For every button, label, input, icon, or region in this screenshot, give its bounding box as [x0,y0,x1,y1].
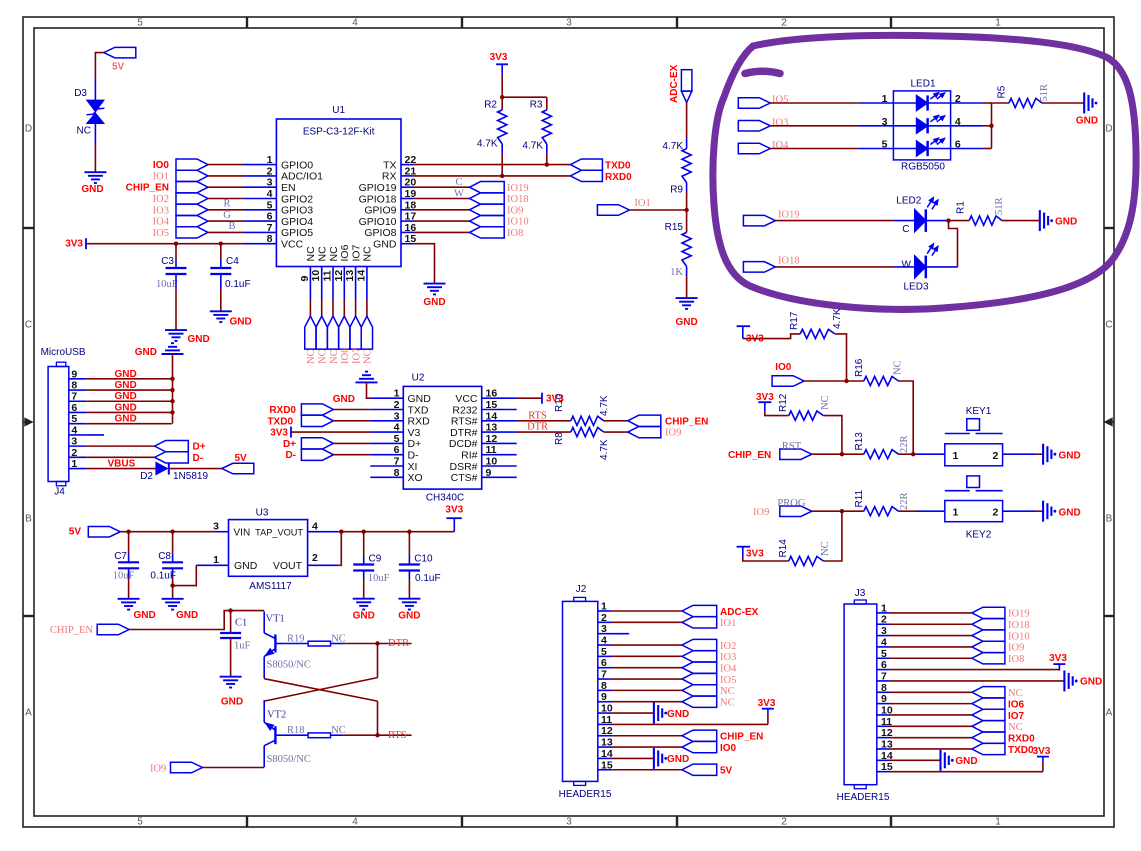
svg-text:C: C [455,177,462,188]
svg-text:IO10: IO10 [1008,631,1030,642]
svg-text:VOUT: VOUT [273,560,303,572]
svg-text:GND: GND [230,317,252,328]
svg-text:8: 8 [881,682,887,694]
svg-text:RGB5050: RGB5050 [901,162,945,173]
svg-text:2: 2 [312,552,318,564]
svg-text:14: 14 [355,270,367,282]
svg-text:VT1: VT1 [266,614,285,625]
svg-text:9: 9 [486,467,492,479]
svg-text:3: 3 [566,18,572,29]
svg-text:2: 2 [781,817,787,828]
svg-text:GND: GND [333,394,355,405]
svg-text:TX: TX [383,159,396,171]
svg-text:6: 6 [881,659,887,671]
svg-text:0.1uF: 0.1uF [225,279,251,290]
svg-text:3V3: 3V3 [65,239,83,250]
svg-text:KEY1: KEY1 [966,406,992,417]
svg-text:R11: R11 [854,489,865,507]
svg-text:1: 1 [213,554,219,566]
svg-text:D-: D- [408,450,420,462]
svg-text:IO7: IO7 [351,348,362,364]
svg-text:GND: GND [373,239,397,251]
svg-text:C: C [902,224,909,235]
svg-text:HEADER15: HEADER15 [559,789,612,800]
svg-text:IO7: IO7 [350,244,362,261]
svg-text:IO3: IO3 [720,652,736,663]
svg-text:GPIO9: GPIO9 [364,205,396,217]
svg-text:D2: D2 [140,471,153,482]
svg-text:IO1: IO1 [720,618,736,629]
svg-text:NC: NC [306,349,317,364]
svg-text:GND: GND [134,610,156,621]
svg-text:C10: C10 [414,554,433,565]
svg-text:CH340C: CH340C [426,493,464,504]
svg-text:4: 4 [312,521,318,533]
svg-text:U1: U1 [332,105,345,116]
svg-text:B: B [1106,514,1113,525]
svg-text:RST: RST [782,441,802,452]
svg-text:J3: J3 [855,588,866,599]
svg-text:7: 7 [394,456,400,468]
svg-text:W: W [454,188,464,199]
svg-text:LED3: LED3 [903,282,928,293]
svg-text:CHIP_EN: CHIP_EN [728,450,771,461]
svg-text:DTR: DTR [388,638,409,649]
svg-text:R232: R232 [452,404,477,416]
svg-text:TXD: TXD [408,404,429,416]
svg-text:IO10: IO10 [507,217,529,228]
svg-text:4.7K: 4.7K [832,308,843,329]
svg-text:4: 4 [352,18,358,29]
svg-text:GPIO2: GPIO2 [281,193,313,205]
svg-text:IO18: IO18 [507,194,529,205]
svg-text:51R: 51R [1039,84,1050,102]
svg-text:3: 3 [566,817,572,828]
svg-text:3: 3 [882,116,888,128]
svg-text:TXD0: TXD0 [267,416,293,427]
svg-text:15: 15 [486,399,498,411]
svg-text:GPIO10: GPIO10 [359,216,397,228]
svg-text:4.7K: 4.7K [522,141,543,152]
svg-text:8: 8 [394,467,400,479]
svg-text:C8: C8 [158,551,171,562]
svg-text:3: 3 [267,177,273,189]
svg-text:1: 1 [953,450,959,462]
svg-text:3V3: 3V3 [445,505,463,516]
svg-text:IO4: IO4 [153,217,170,228]
svg-text:GND: GND [115,391,137,402]
svg-text:1N5819: 1N5819 [173,471,208,482]
svg-text:3: 3 [213,521,219,533]
svg-text:EN: EN [281,182,296,194]
svg-text:RI#: RI# [461,450,478,462]
svg-text:10: 10 [486,456,498,468]
svg-text:NC: NC [720,686,735,697]
svg-text:CHIP_EN: CHIP_EN [720,732,763,743]
svg-text:IO19: IO19 [778,209,800,220]
svg-text:IO1: IO1 [634,198,650,209]
svg-text:11: 11 [322,270,334,281]
svg-text:4: 4 [352,817,358,828]
svg-text:J2: J2 [576,584,587,595]
svg-text:IO9: IO9 [1008,643,1024,654]
svg-text:4: 4 [881,636,887,648]
svg-text:IO7: IO7 [1008,711,1025,722]
svg-text:NC: NC [893,360,904,375]
svg-text:7: 7 [601,669,607,681]
svg-text:IO6: IO6 [339,244,351,261]
svg-text:D: D [25,124,32,135]
svg-text:2: 2 [601,612,607,624]
svg-text:3V3: 3V3 [1033,746,1051,757]
svg-text:D+: D+ [283,439,296,450]
svg-text:R: R [223,199,230,210]
svg-text:3: 3 [881,625,887,637]
svg-text:GND: GND [1059,451,1081,462]
svg-text:IO3: IO3 [772,117,788,128]
svg-text:ADC-EX: ADC-EX [669,64,680,103]
svg-text:IO19: IO19 [507,183,529,194]
svg-text:MicroUSB: MicroUSB [41,347,86,358]
svg-text:IO2: IO2 [720,641,736,652]
svg-text:22R: 22R [899,492,910,510]
svg-text:9: 9 [881,693,887,705]
svg-text:IO8: IO8 [1008,654,1024,665]
svg-text:GND: GND [408,393,432,405]
svg-text:10uF: 10uF [368,573,390,584]
svg-text:3V3: 3V3 [1049,653,1067,664]
svg-text:C1: C1 [235,618,247,629]
svg-text:NC: NC [720,698,735,709]
svg-text:GND: GND [423,297,445,308]
svg-text:DTR: DTR [527,422,548,433]
svg-text:9: 9 [299,276,311,282]
svg-text:RXD0: RXD0 [605,172,632,183]
svg-text:GPIO5: GPIO5 [281,227,313,239]
svg-text:NC: NC [329,349,340,364]
svg-text:D: D [1105,124,1112,135]
svg-text:GND: GND [115,402,137,413]
svg-text:VCC: VCC [455,393,478,405]
svg-text:GND: GND [1059,508,1081,519]
svg-text:KEY2: KEY2 [966,530,992,541]
svg-text:RX: RX [382,171,397,183]
svg-text:AMS1117: AMS1117 [249,581,292,592]
svg-text:IO0: IO0 [153,160,170,171]
svg-text:R5: R5 [997,85,1008,98]
svg-text:U3: U3 [256,508,269,519]
svg-text:R13: R13 [854,432,865,451]
svg-text:4: 4 [601,635,607,647]
svg-text:DSR#: DSR# [449,461,477,473]
svg-text:5: 5 [881,648,887,660]
svg-text:VT2: VT2 [267,710,286,721]
svg-text:U2: U2 [412,373,425,384]
svg-text:NC: NC [317,246,329,262]
svg-text:NC: NC [820,395,831,410]
svg-text:GND: GND [1080,677,1102,688]
svg-text:RTS: RTS [528,410,547,421]
svg-text:12: 12 [333,270,345,282]
svg-text:4.7K: 4.7K [477,139,498,150]
svg-text:51R: 51R [994,197,1005,215]
svg-text:3V3: 3V3 [270,428,288,439]
svg-text:NC: NC [1008,722,1023,733]
svg-text:5: 5 [267,199,273,211]
svg-text:GND: GND [115,369,137,380]
svg-text:3: 3 [394,410,400,422]
svg-text:5: 5 [137,18,143,29]
svg-text:IO8: IO8 [507,228,523,239]
svg-text:CHIP_EN: CHIP_EN [665,416,708,427]
svg-text:CHIP_EN: CHIP_EN [50,625,94,636]
svg-text:IO19: IO19 [1008,609,1030,620]
svg-text:NC: NC [305,246,317,262]
svg-text:D-: D- [193,453,204,464]
svg-text:4: 4 [394,422,400,434]
svg-text:HEADER15: HEADER15 [837,792,890,803]
svg-text:5V: 5V [69,527,82,538]
svg-text:GND: GND [115,380,137,391]
svg-text:J4: J4 [54,487,65,498]
svg-text:1: 1 [882,93,888,105]
svg-text:GND: GND [221,697,243,708]
svg-text:6: 6 [394,444,400,456]
svg-text:R18: R18 [287,725,305,736]
svg-text:5: 5 [601,646,607,658]
svg-text:ESP-C3-12F-Kit: ESP-C3-12F-Kit [303,127,375,138]
svg-text:R10: R10 [554,393,565,412]
svg-text:5V: 5V [112,62,125,73]
svg-text:GND: GND [1055,217,1077,228]
svg-text:4.7K: 4.7K [599,439,610,460]
svg-text:C7: C7 [114,551,127,562]
svg-text:PROG: PROG [777,498,805,509]
svg-text:GND: GND [234,560,258,572]
svg-text:RXD: RXD [408,416,431,428]
svg-text:11: 11 [601,714,612,726]
svg-text:0.1uF: 0.1uF [415,573,441,584]
svg-text:3V3: 3V3 [758,698,776,709]
svg-text:DCD#: DCD# [449,438,478,450]
svg-text:R3: R3 [530,100,543,111]
svg-text:GPIO0: GPIO0 [281,159,313,171]
svg-text:ADC/IO1: ADC/IO1 [281,171,323,183]
svg-text:R14: R14 [778,539,789,558]
svg-text:A: A [25,708,32,719]
svg-text:V3: V3 [408,427,421,439]
svg-text:GPIO19: GPIO19 [359,182,397,194]
svg-text:13: 13 [486,422,498,434]
svg-text:3: 3 [601,623,607,635]
svg-text:R15: R15 [665,222,684,233]
svg-text:1: 1 [995,817,1001,828]
svg-text:NC: NC [820,541,831,556]
svg-text:S8050/NC: S8050/NC [267,660,311,671]
svg-text:4: 4 [267,188,273,200]
svg-text:D3: D3 [74,88,87,99]
svg-text:IO9: IO9 [665,428,681,439]
svg-text:GND: GND [115,414,137,425]
svg-text:R16: R16 [854,358,865,377]
svg-text:W: W [902,260,912,271]
svg-text:3V3: 3V3 [746,549,764,560]
svg-text:IO9: IO9 [507,205,523,216]
svg-text:NC: NC [1008,688,1023,699]
svg-text:NC: NC [331,725,346,736]
svg-text:NC: NC [362,246,374,262]
svg-text:22R: 22R [899,435,910,453]
svg-text:XO: XO [408,472,423,484]
svg-text:IO5: IO5 [720,675,736,686]
svg-text:2: 2 [267,165,273,177]
svg-text:IO2: IO2 [153,194,169,205]
svg-text:4.7K: 4.7K [662,141,683,152]
svg-text:GND: GND [675,317,697,328]
svg-text:10: 10 [310,270,322,282]
svg-text:IO4: IO4 [720,664,737,675]
svg-text:XI: XI [408,461,418,473]
svg-text:CHIP_EN: CHIP_EN [126,183,169,194]
svg-text:G: G [223,210,231,221]
svg-text:2: 2 [881,614,887,626]
svg-text:IO3: IO3 [153,205,169,216]
svg-text:IO6: IO6 [340,348,351,364]
svg-text:2: 2 [993,450,999,462]
svg-text:1: 1 [267,154,273,166]
svg-text:ADC-EX: ADC-EX [720,607,759,618]
svg-text:NC: NC [77,126,91,137]
svg-text:2: 2 [781,18,787,29]
svg-text:1: 1 [394,388,400,400]
svg-text:R12: R12 [778,393,789,412]
svg-text:1: 1 [995,18,1001,29]
svg-text:IO4: IO4 [772,140,789,151]
svg-text:IO18: IO18 [1008,620,1030,631]
svg-text:R1: R1 [956,201,967,214]
svg-text:A: A [1106,708,1113,719]
svg-text:IO0: IO0 [720,743,737,754]
svg-text:GPIO8: GPIO8 [364,227,396,239]
svg-text:14: 14 [486,410,498,422]
svg-text:IO18: IO18 [778,256,800,267]
svg-text:R8: R8 [554,432,565,445]
svg-text:12: 12 [486,433,498,445]
svg-text:10uF: 10uF [113,571,135,582]
svg-text:NC: NC [328,246,340,262]
svg-text:6: 6 [267,211,273,223]
svg-text:R9: R9 [670,185,683,196]
svg-text:GPIO4: GPIO4 [281,216,313,228]
svg-text:S8050/NC: S8050/NC [267,754,311,765]
svg-text:5: 5 [882,139,888,151]
svg-text:B: B [228,221,235,232]
svg-text:5V: 5V [234,453,247,464]
svg-text:C3: C3 [161,256,174,267]
svg-text:10uF: 10uF [156,279,178,290]
svg-text:IO5: IO5 [772,95,788,106]
svg-text:LED2: LED2 [896,196,921,207]
svg-text:NC: NC [363,349,374,364]
svg-text:R17: R17 [789,311,800,330]
svg-text:GND: GND [188,334,210,345]
svg-text:C: C [25,320,32,331]
svg-text:16: 16 [486,388,498,400]
svg-text:GND: GND [667,754,689,765]
svg-text:C9: C9 [369,554,382,565]
svg-text:4.7K: 4.7K [599,395,610,416]
svg-text:8: 8 [601,680,607,692]
svg-text:2: 2 [993,507,999,519]
svg-text:B: B [25,514,32,525]
svg-text:D+: D+ [193,442,206,453]
svg-text:GPIO18: GPIO18 [359,193,397,205]
svg-text:1K: 1K [670,267,683,278]
svg-text:5: 5 [394,433,400,445]
svg-text:IO9: IO9 [753,507,769,518]
svg-text:RXD0: RXD0 [1008,733,1035,744]
svg-text:6: 6 [601,657,607,669]
svg-text:5: 5 [137,817,143,828]
svg-text:9: 9 [601,691,607,703]
svg-text:1: 1 [601,601,607,613]
svg-text:RTS#: RTS# [451,416,478,428]
svg-text:IO6: IO6 [1008,699,1025,710]
svg-text:11: 11 [486,444,497,456]
svg-text:GND: GND [1076,116,1098,127]
svg-text:13: 13 [344,270,356,282]
svg-text:GND: GND [81,184,103,195]
svg-text:GND: GND [135,347,157,358]
svg-text:IO1: IO1 [153,171,169,182]
svg-text:GND: GND [353,611,375,622]
svg-text:1uF: 1uF [234,641,251,652]
svg-text:RXD0: RXD0 [269,405,296,416]
svg-text:IO0: IO0 [775,362,792,373]
svg-text:8: 8 [267,233,273,245]
svg-text:VIN: VIN [234,528,251,539]
svg-text:GPIO3: GPIO3 [281,205,313,217]
svg-text:VBUS: VBUS [108,458,136,469]
svg-text:RTS: RTS [388,730,407,741]
svg-text:GND: GND [398,611,420,622]
svg-text:5V: 5V [720,766,733,777]
svg-text:1: 1 [881,602,887,614]
svg-text:CTS#: CTS# [451,472,478,484]
svg-text:TXD0: TXD0 [1008,745,1034,756]
svg-text:7: 7 [881,670,887,682]
svg-text:IO5: IO5 [153,228,169,239]
svg-text:7: 7 [267,222,273,234]
svg-text:VCC: VCC [281,239,304,251]
svg-text:TXD0: TXD0 [605,161,631,172]
svg-text:TAP_VOUT: TAP_VOUT [255,528,303,538]
svg-text:GND: GND [955,756,977,767]
svg-text:C: C [1105,320,1112,331]
svg-text:D-: D- [285,450,296,461]
svg-text:1: 1 [953,507,959,519]
svg-text:C4: C4 [226,256,239,267]
svg-text:IO9: IO9 [150,764,166,775]
svg-text:NC: NC [318,349,329,364]
svg-text:2: 2 [394,399,400,411]
svg-text:DTR#: DTR# [450,427,478,439]
svg-text:GND: GND [176,610,198,621]
svg-text:R2: R2 [484,100,497,111]
svg-text:LED1: LED1 [910,79,935,90]
svg-text:3V3: 3V3 [490,52,508,63]
svg-text:GND: GND [667,709,689,720]
